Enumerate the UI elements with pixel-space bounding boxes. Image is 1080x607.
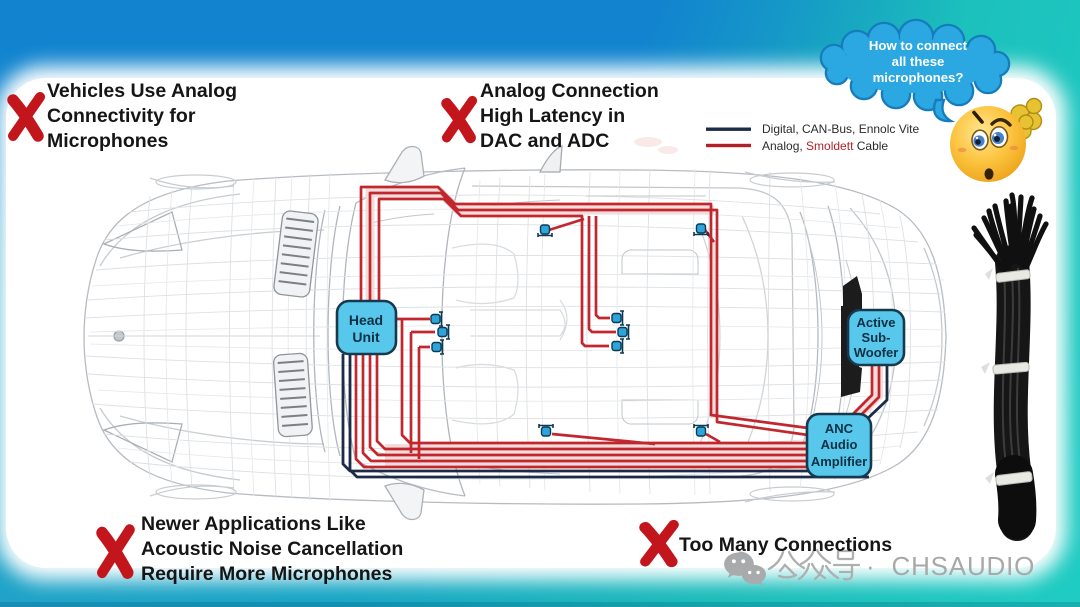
- svg-text:Audio: Audio: [821, 437, 858, 452]
- svg-text:all these: all these: [892, 54, 945, 69]
- svg-text:Unit: Unit: [352, 329, 380, 345]
- svg-text:Amplifier: Amplifier: [811, 454, 867, 469]
- svg-text:Woofer: Woofer: [854, 345, 899, 360]
- svg-text:How to connect: How to connect: [869, 38, 968, 53]
- svg-text:Sub-: Sub-: [862, 330, 891, 345]
- svg-text:Active: Active: [856, 315, 895, 330]
- svg-text:ANC: ANC: [825, 421, 854, 436]
- svg-text:microphones?: microphones?: [873, 70, 964, 85]
- svg-text:Head: Head: [349, 312, 383, 328]
